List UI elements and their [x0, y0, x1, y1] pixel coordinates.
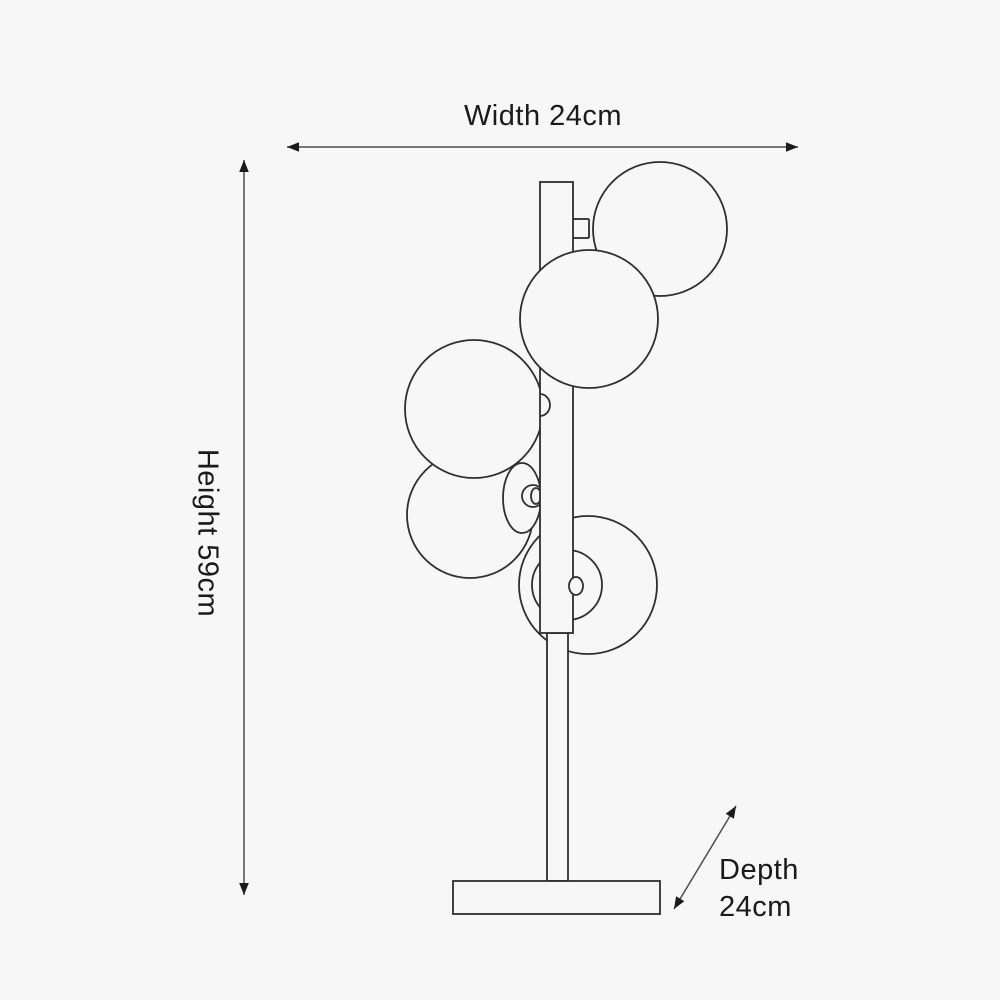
- lamp-pole: [547, 633, 568, 881]
- lamp-globe-middle-left: [405, 340, 543, 478]
- depth-dimension-label: Depth 24cm: [719, 852, 799, 926]
- depth-dimension-label-line1: Depth: [719, 852, 799, 889]
- lamp-globe-upper-center: [520, 250, 658, 388]
- width-dimension-label: Width 24cm: [443, 99, 643, 134]
- lamp-stem: [540, 182, 573, 633]
- lamp-stem-knob: [569, 577, 583, 595]
- dimension-diagram: Width 24cm Height 59cm Depth 24cm: [0, 0, 1000, 1000]
- lamp-line-drawing: [0, 0, 1000, 1000]
- depth-dimension-label-line2: 24cm: [719, 889, 799, 926]
- height-dimension-label: Height 59cm: [190, 449, 225, 617]
- lamp-base: [453, 881, 660, 914]
